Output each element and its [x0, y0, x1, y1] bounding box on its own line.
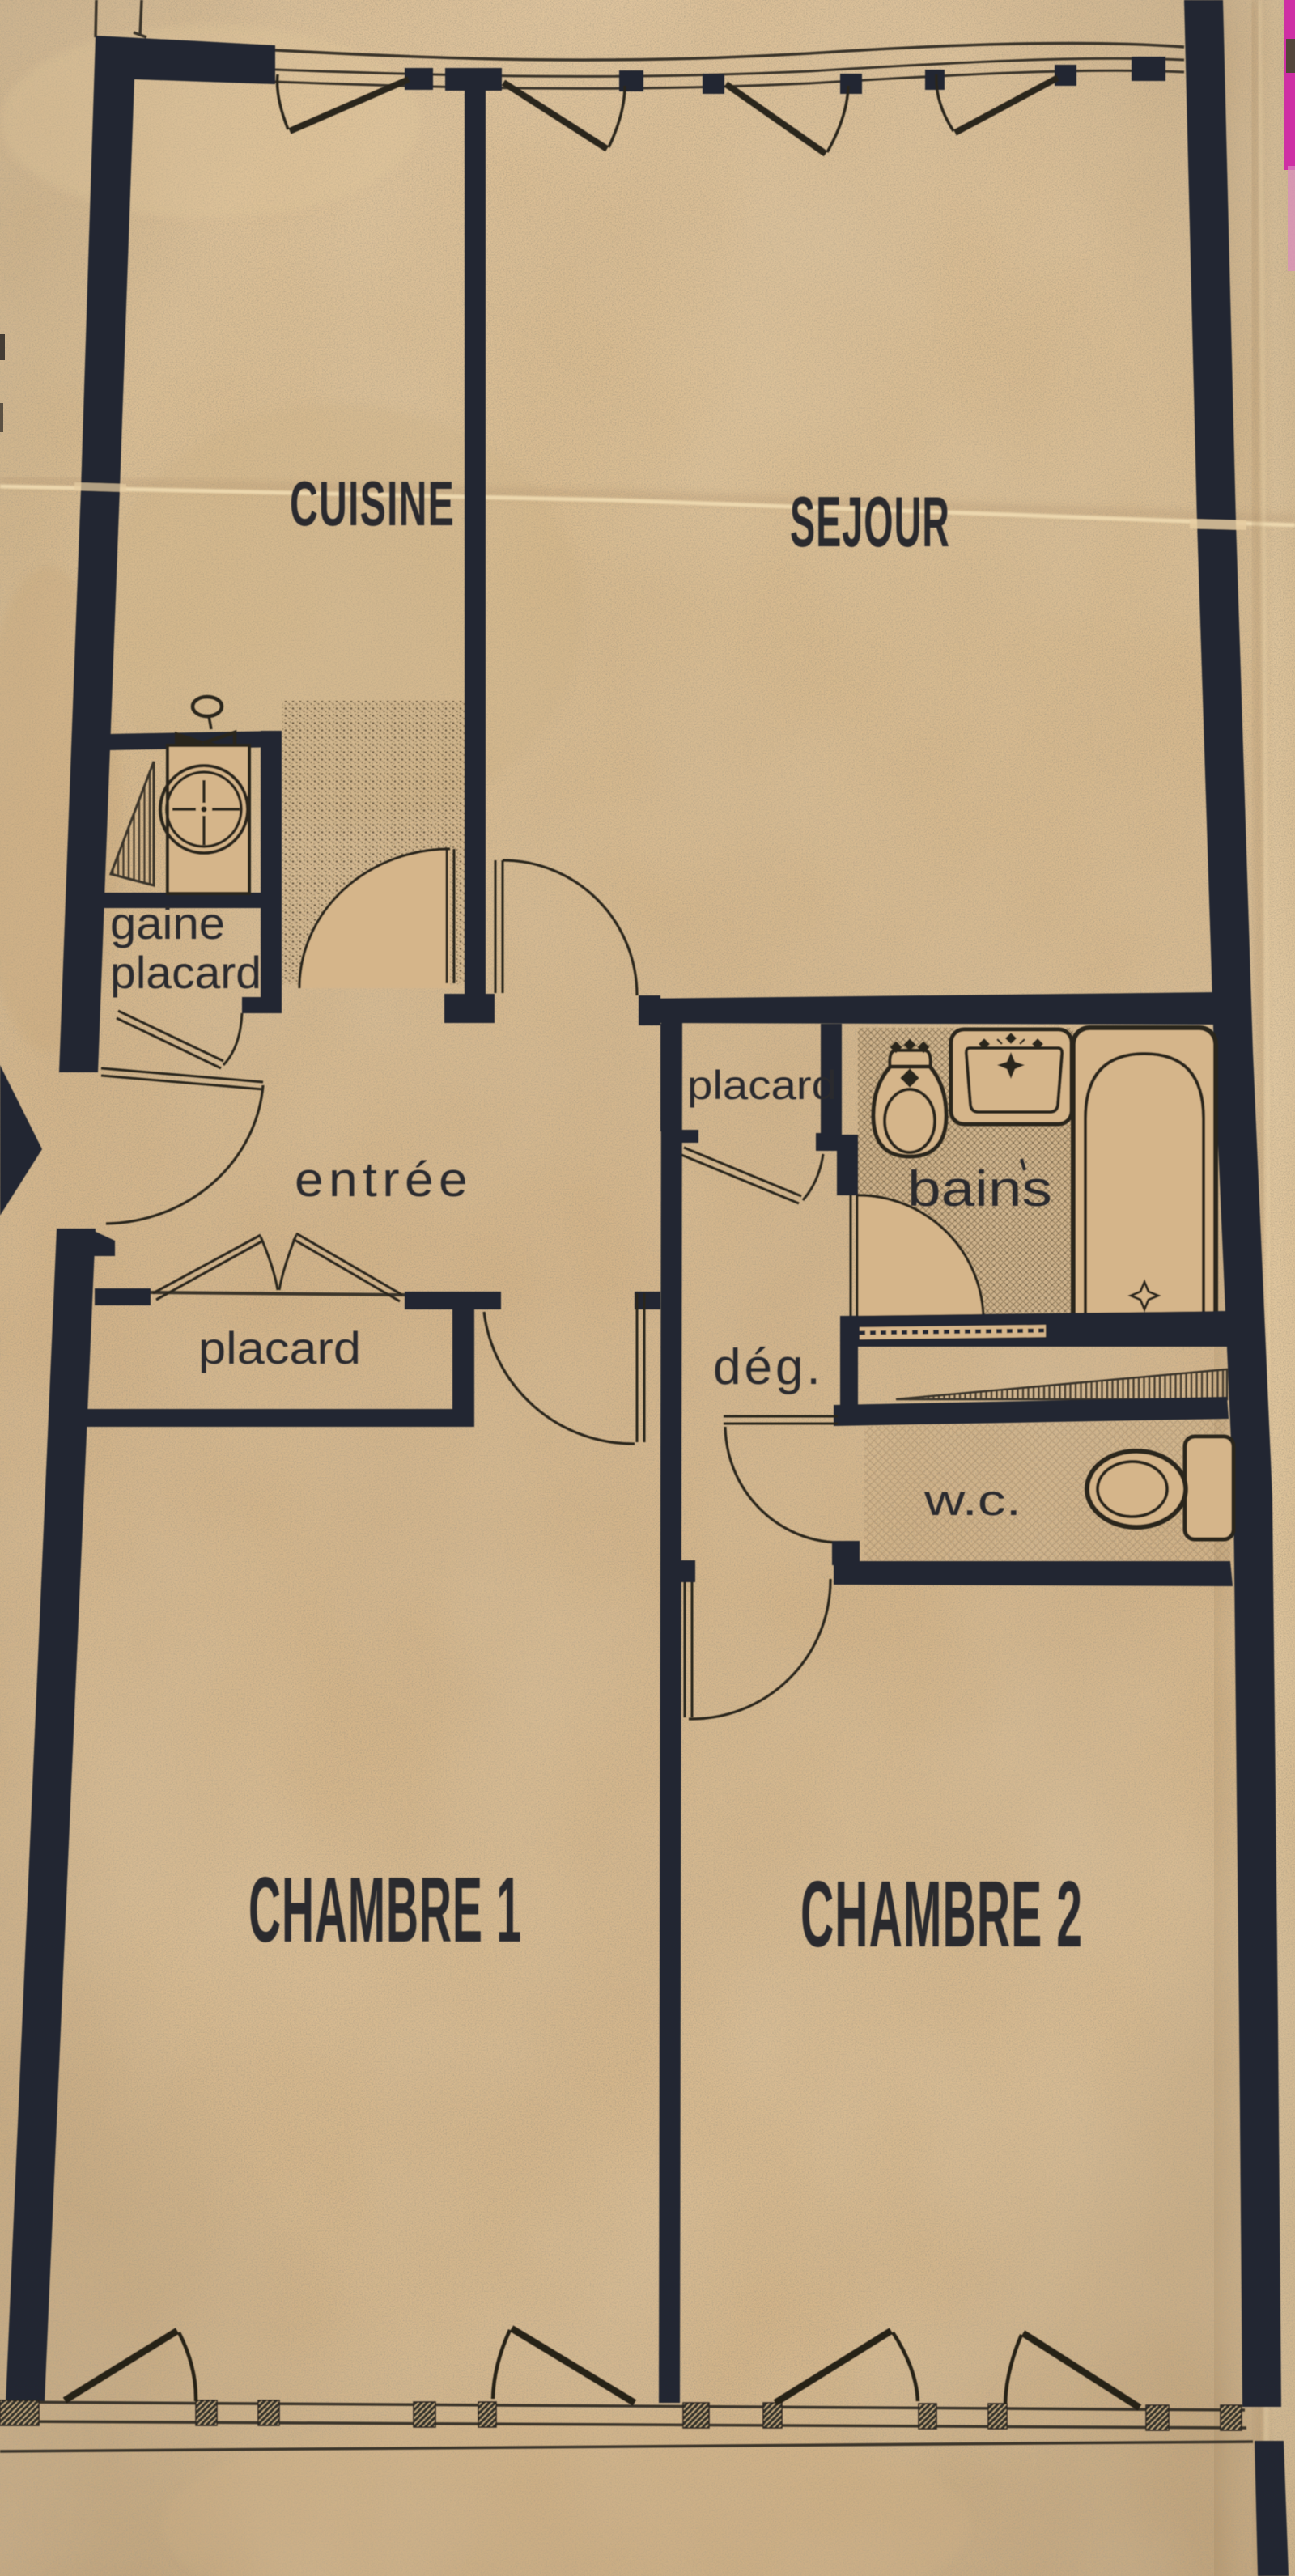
svg-text:dég.: dég. [713, 1339, 824, 1395]
svg-text:CHAMBRE 2: CHAMBRE 2 [800, 1861, 1083, 1967]
svg-text:w.c.: w.c. [923, 1476, 1021, 1525]
svg-text:CUISINE: CUISINE [290, 468, 455, 539]
svg-text:placard: placard [198, 1322, 361, 1373]
svg-text:CHAMBRE 1: CHAMBRE 1 [248, 1859, 522, 1962]
svg-text:bains: bains [907, 1161, 1052, 1217]
svg-text:SEJOUR: SEJOUR [790, 482, 950, 562]
svg-text:placard: placard [687, 1063, 837, 1108]
svg-text:gaine: gaine [110, 898, 225, 948]
svg-text:entrée: entrée [295, 1152, 473, 1207]
svg-text:placard: placard [110, 947, 261, 998]
